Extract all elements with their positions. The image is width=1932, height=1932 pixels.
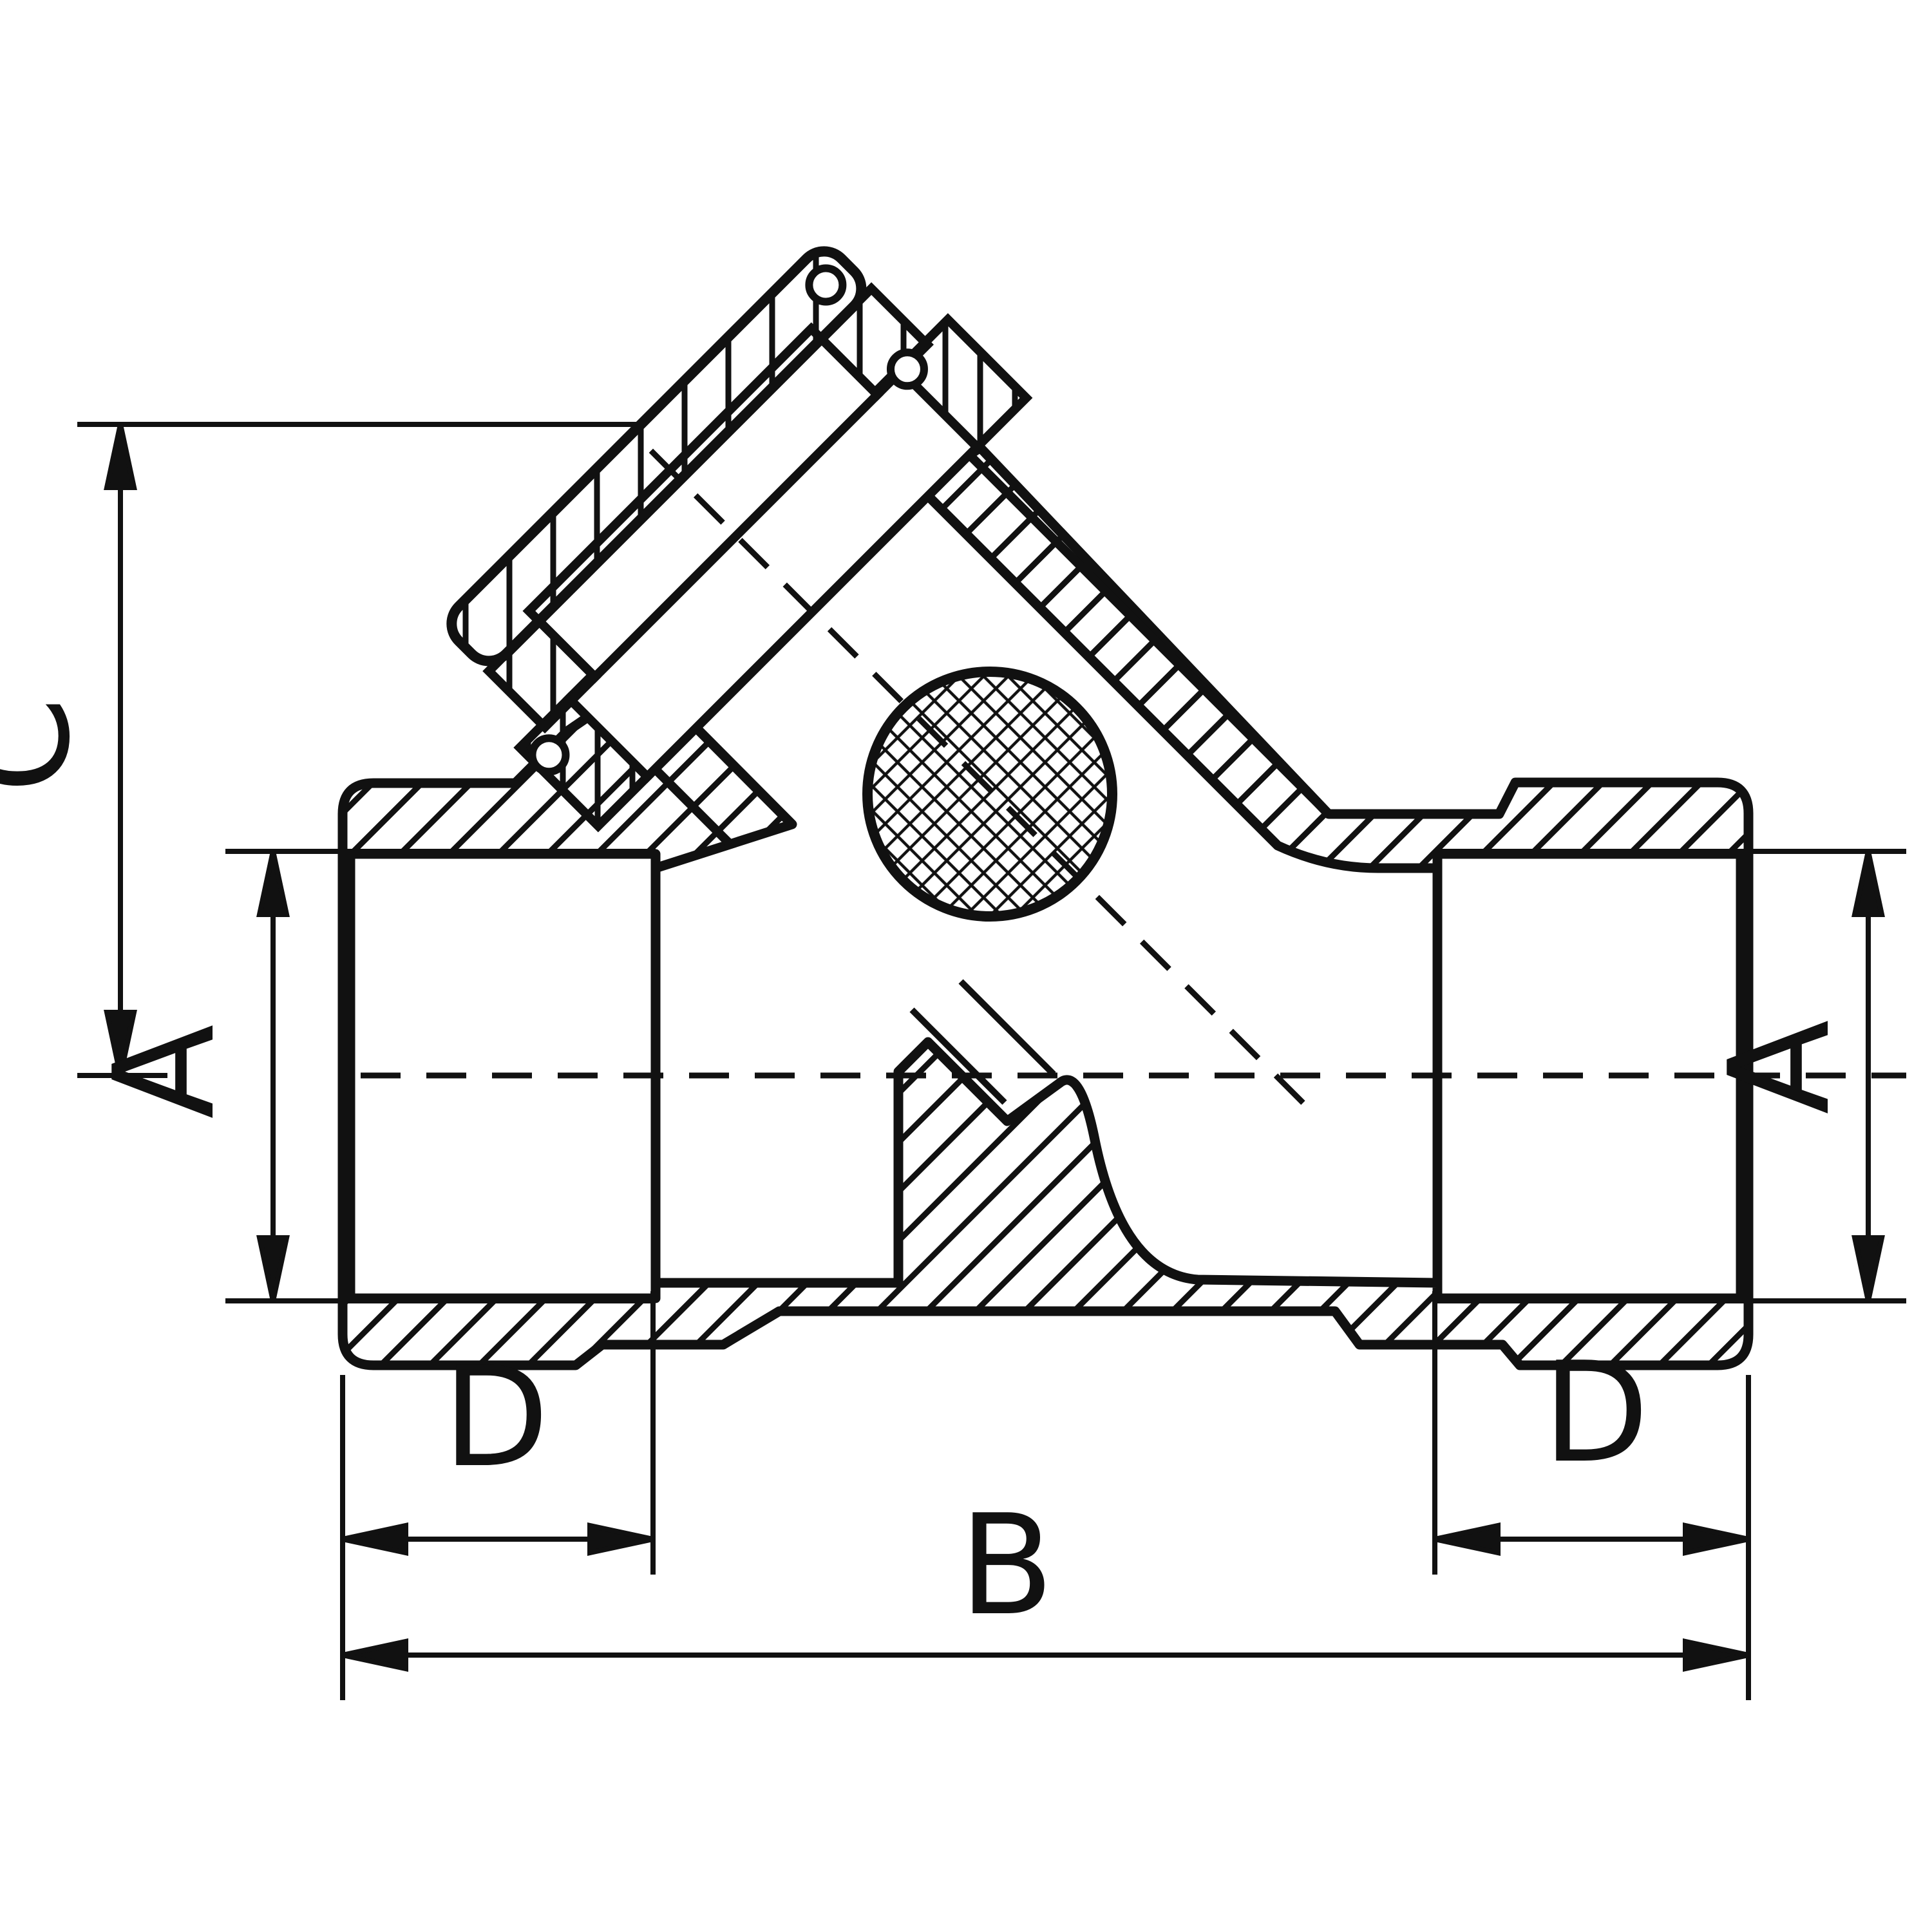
dim-label-d-left: D [442, 1336, 549, 1498]
arrowhead-icon [1855, 1238, 1882, 1301]
technical-drawing: C A A D D B [0, 0, 1932, 1932]
arrowhead-icon [1435, 1526, 1498, 1553]
strainer-screen [867, 672, 1112, 1103]
arrowhead-icon [590, 1526, 653, 1553]
arrowhead-icon [260, 1238, 287, 1301]
arrowhead-icon [343, 1642, 406, 1669]
arrowhead-icon [260, 851, 287, 914]
arrowhead-icon [343, 1526, 406, 1553]
arrowhead-icon [107, 424, 134, 488]
dim-label-d-right: D [1542, 1332, 1649, 1493]
dim-label-b: B [959, 1484, 1054, 1646]
strainer-screen-icon [867, 672, 1112, 916]
dimension-a-left [260, 851, 287, 1301]
arrowhead-icon [1685, 1642, 1748, 1669]
dim-label-c: C [0, 697, 100, 793]
arrowhead-icon [1855, 851, 1882, 914]
arrowhead-icon [1685, 1526, 1748, 1553]
dim-label-a-right: A [1699, 1019, 1861, 1114]
dim-label-a-left: A [84, 1024, 245, 1119]
drawing-canvas: C A A D D B [0, 0, 1932, 1932]
